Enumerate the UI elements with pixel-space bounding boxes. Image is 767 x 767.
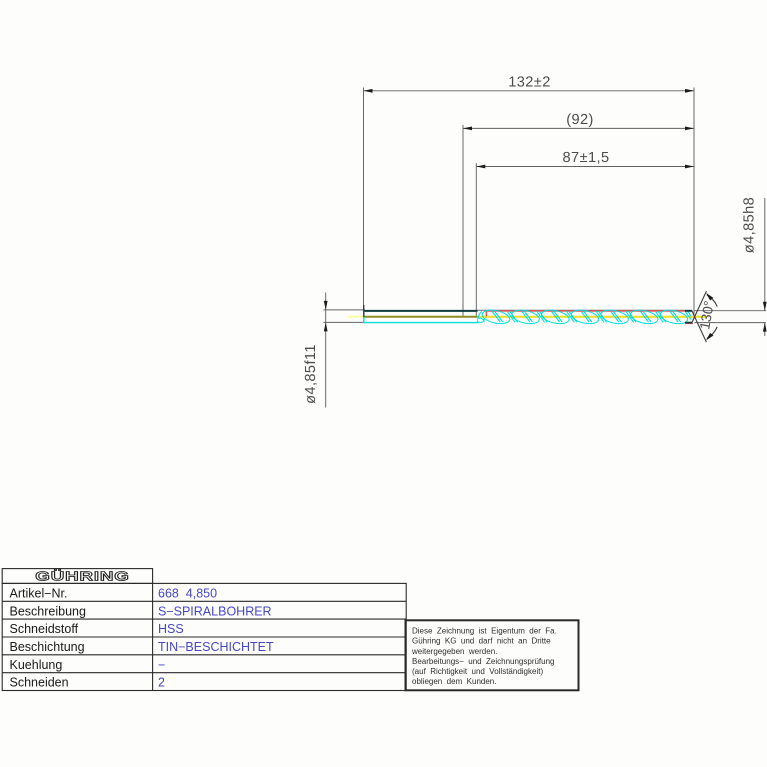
svg-text:GÜHRING: GÜHRING <box>35 568 129 583</box>
svg-text:Kuehlung: Kuehlung <box>10 658 63 672</box>
svg-text:132±2: 132±2 <box>508 74 550 90</box>
svg-text:(92): (92) <box>566 112 594 128</box>
svg-text:Schneidstoff: Schneidstoff <box>10 622 79 636</box>
svg-text:TIN−BESCHICHTET: TIN−BESCHICHTET <box>158 640 274 654</box>
svg-text:(auf Richtigkeit und Vollständ: (auf Richtigkeit und Vollständigkeit) <box>412 667 543 676</box>
svg-text:Gühring KG und darf nicht an D: Gühring KG und darf nicht an Dritte <box>412 637 551 646</box>
svg-text:ø4,85h8: ø4,85h8 <box>742 197 758 253</box>
svg-text:130°: 130° <box>696 299 717 330</box>
svg-text:87±1,5: 87±1,5 <box>563 150 610 166</box>
svg-text:2: 2 <box>158 676 165 690</box>
svg-text:Diese Zeichnung ist Eigentum d: Diese Zeichnung ist Eigentum der Fa. <box>412 627 557 636</box>
svg-text:Bearbeitungs− und Zeichnungspr: Bearbeitungs− und Zeichnungsprüfung <box>412 657 555 666</box>
svg-text:weitergegeben werden.: weitergegeben werden. <box>411 647 497 656</box>
svg-text:Artikel−Nr.: Artikel−Nr. <box>10 587 68 601</box>
svg-text:obliegen dem Kunden.: obliegen dem Kunden. <box>412 677 496 686</box>
svg-text:Beschichtung: Beschichtung <box>10 640 85 654</box>
svg-text:HSS: HSS <box>158 622 184 636</box>
svg-text:S−SPIRALBOHRER: S−SPIRALBOHRER <box>158 604 272 618</box>
svg-text:−: − <box>158 658 165 672</box>
svg-text:Beschreibung: Beschreibung <box>10 604 86 618</box>
svg-text:ø4,85f11: ø4,85f11 <box>303 344 319 404</box>
svg-text:Schneiden: Schneiden <box>10 676 69 690</box>
svg-text:668 4,850: 668 4,850 <box>158 587 217 601</box>
